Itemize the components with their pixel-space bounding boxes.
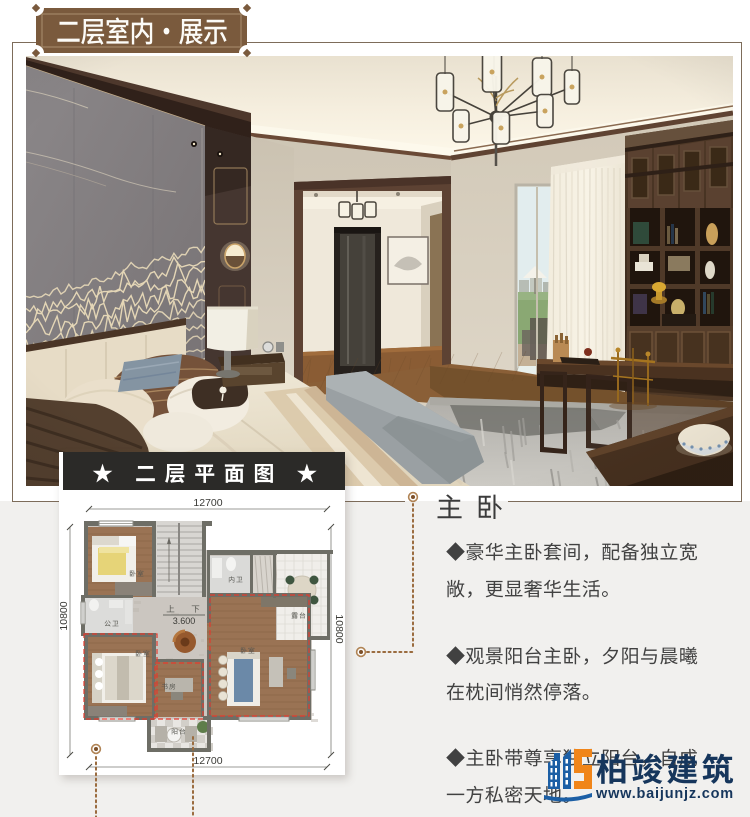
svg-text:www.baijunjz.com: www.baijunjz.com: [595, 786, 734, 802]
